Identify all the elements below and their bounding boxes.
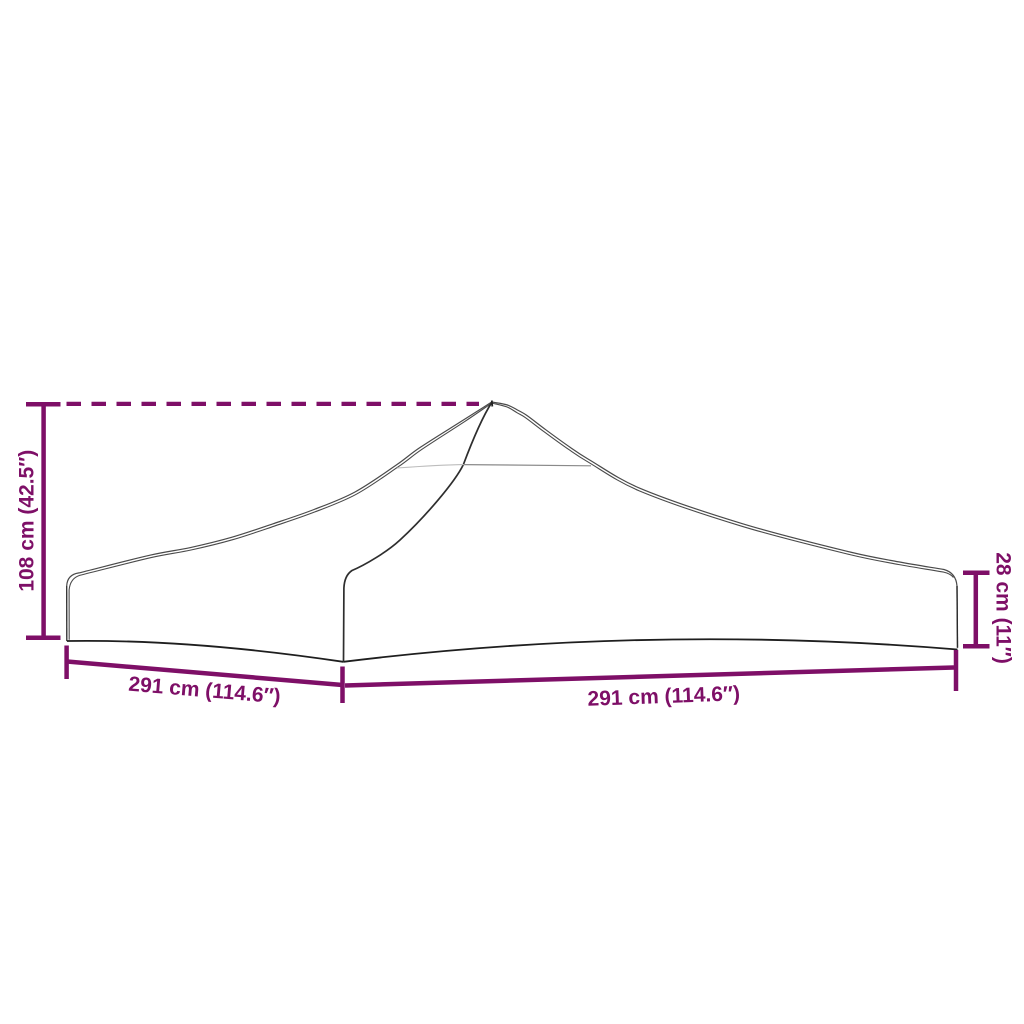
svg-text:28 cm (11″): 28 cm (11″) [992,552,1015,664]
svg-text:291 cm (114.6″): 291 cm (114.6″) [587,682,740,711]
svg-text:108 cm (42.5″): 108 cm (42.5″) [16,450,39,592]
